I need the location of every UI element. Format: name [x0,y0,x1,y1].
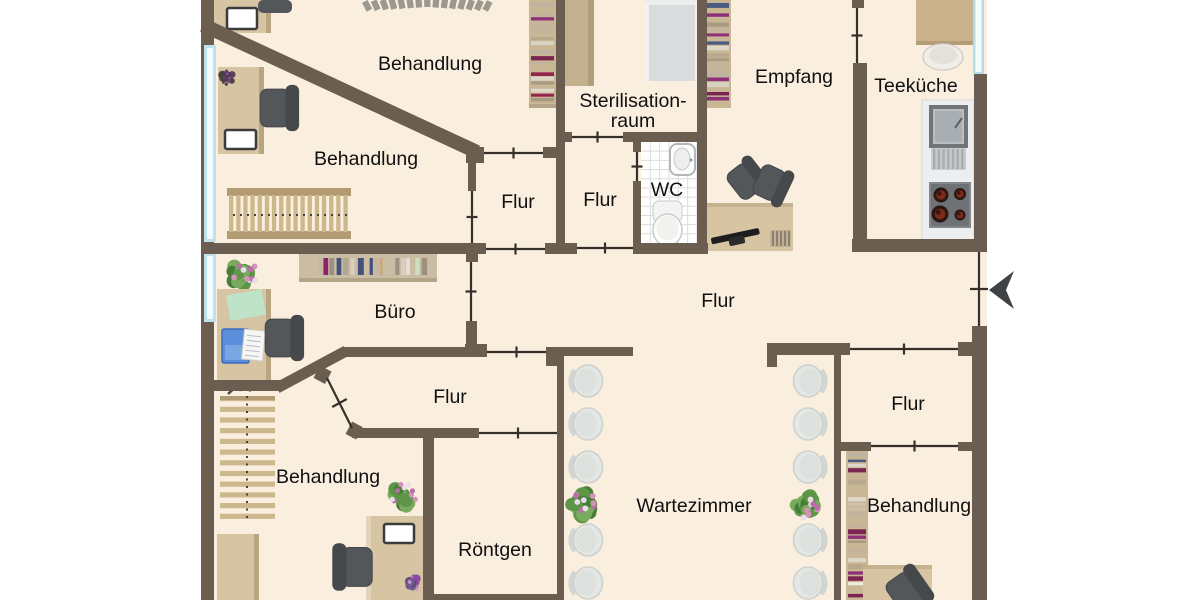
svg-text:Behandlung: Behandlung [314,148,418,170]
svg-text:Wartezimmer: Wartezimmer [636,495,752,517]
svg-text:Sterilisation-: Sterilisation- [579,90,686,112]
svg-text:Flur: Flur [433,386,467,408]
svg-text:Behandlung: Behandlung [276,466,380,488]
svg-text:Behandlung: Behandlung [378,53,482,75]
svg-text:Röntgen: Röntgen [458,539,532,561]
svg-text:Flur: Flur [583,189,617,211]
svg-text:Flur: Flur [701,290,735,312]
svg-text:Flur: Flur [501,191,535,213]
svg-text:Büro: Büro [374,301,415,323]
svg-text:WC: WC [651,179,684,201]
svg-text:Teeküche: Teeküche [874,75,957,97]
svg-text:Flur: Flur [891,393,925,415]
svg-text:Empfang: Empfang [755,66,833,88]
svg-text:raum: raum [611,110,655,132]
svg-text:Behandlung: Behandlung [867,495,971,517]
